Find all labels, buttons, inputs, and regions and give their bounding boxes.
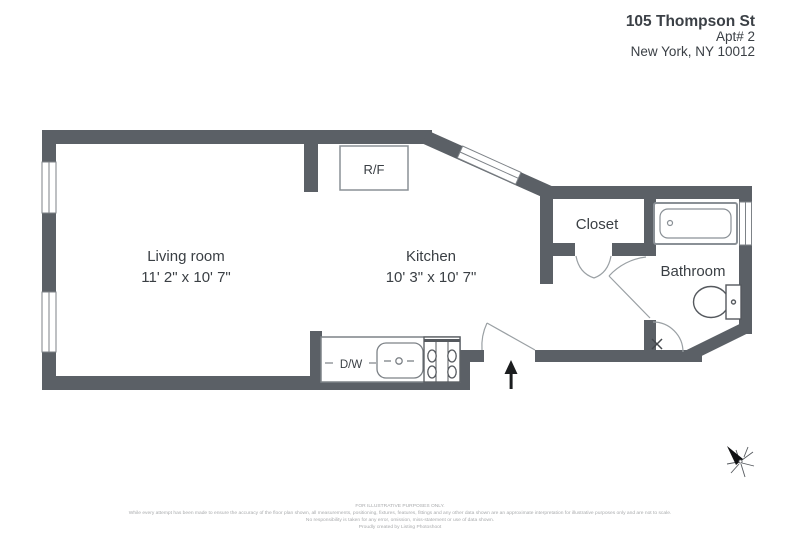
dishwasher-label: D/W <box>340 359 363 371</box>
disclaimer-line-4: Proudly created by Listing Photoshoot <box>0 524 800 531</box>
floor-plan-page: 105 Thompson St Apt# 2 New York, NY 1001… <box>0 0 800 533</box>
disclaimer-line-2: While every attempt has been made to ens… <box>0 510 800 517</box>
closet-label: Closet <box>576 216 619 233</box>
entry-arrow-icon <box>505 360 518 389</box>
kitchen-dimensions: 10' 3" x 10' 7" <box>386 269 477 286</box>
bathroom-inner-door-arc <box>653 322 683 352</box>
bathtub-icon <box>654 203 737 244</box>
sink-icon <box>377 343 423 378</box>
bathroom-door-arc <box>609 257 650 318</box>
refrigerator-label: R/F <box>364 162 385 177</box>
disclaimer-footer: FOR ILLUSTRATIVE PURPOSES ONLY. While ev… <box>0 503 800 531</box>
floor-plan-drawing: R/F D/W <box>0 0 800 533</box>
disclaimer-line-3: No responsibility is taken for any error… <box>0 517 800 524</box>
toilet-icon <box>694 285 742 319</box>
kitchen-label: Kitchen <box>406 248 456 265</box>
living-room-label: Living room <box>147 248 225 265</box>
compass-icon <box>727 446 754 477</box>
disclaimer-line-1: FOR ILLUSTRATIVE PURPOSES ONLY. <box>0 503 800 510</box>
refrigerator-box: R/F <box>340 146 408 190</box>
window-icon-diagonal <box>457 146 521 184</box>
window-icon-bathroom <box>740 202 752 245</box>
living-room-dimensions: 11' 2" x 10' 7" <box>141 269 231 286</box>
window-icon-left-1 <box>42 162 56 213</box>
window-icon-left-2 <box>42 292 56 352</box>
entry-door-arc <box>482 323 535 350</box>
stove-icon <box>424 337 460 382</box>
bathroom-label: Bathroom <box>660 263 725 280</box>
kitchen-counter: D/W <box>321 337 460 382</box>
closet-double-doors <box>576 256 611 278</box>
